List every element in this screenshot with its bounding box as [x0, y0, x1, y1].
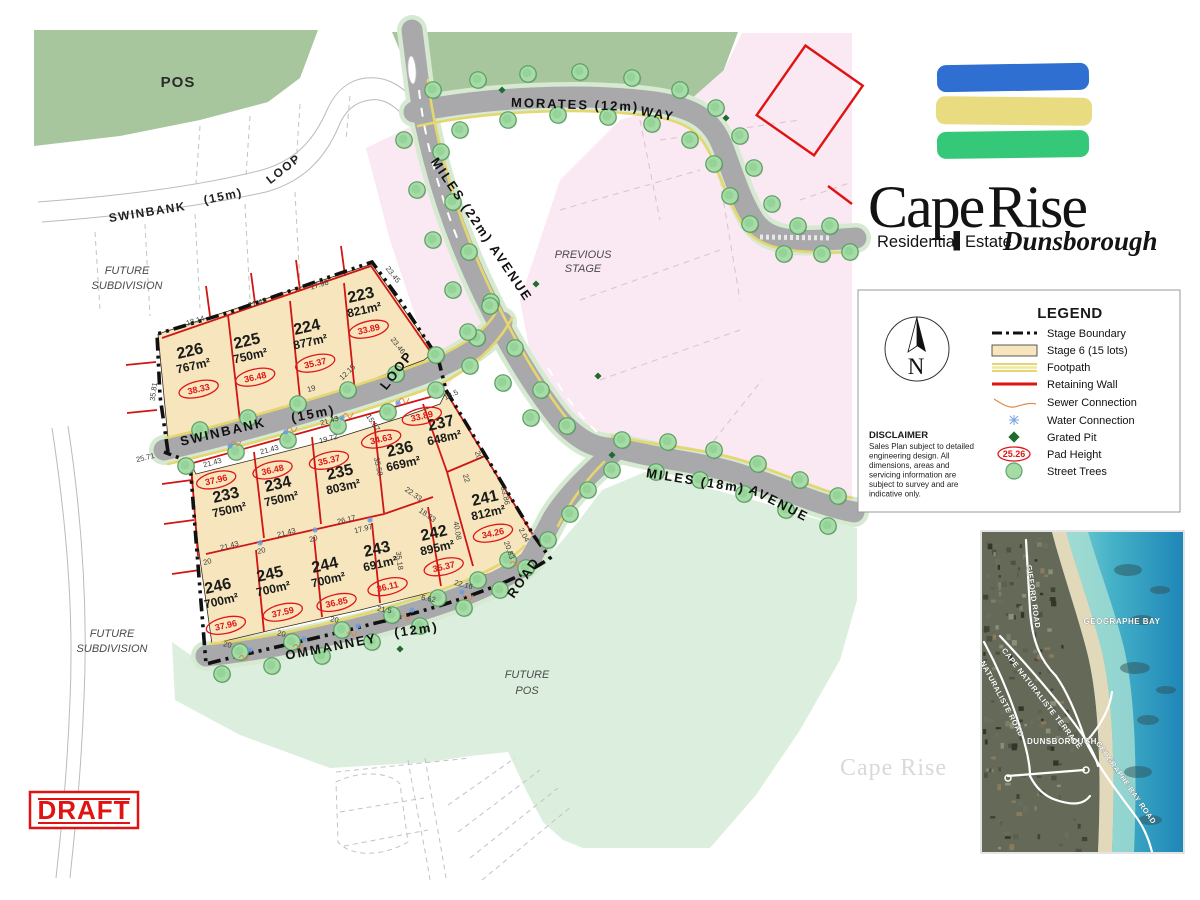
legend-item-label: Stage Boundary	[1047, 328, 1126, 340]
legend-item-label: Footpath	[1047, 362, 1090, 374]
street-tree-icon	[462, 358, 479, 375]
dimension-label: 35.81	[148, 382, 160, 402]
location-map: GEOGRAPHE BAY GIFFORD ROAD CAPE NATURALI…	[978, 531, 1184, 853]
legend-item-label: Water Connection	[1047, 415, 1135, 427]
legend-item-label: Grated Pit	[1047, 432, 1097, 444]
legend-panel: N LEGEND 25.26 Stage Boundary Stage 6 (1…	[858, 290, 1180, 512]
street-tree-icon	[822, 218, 839, 235]
street-tree-icon	[776, 246, 793, 263]
legend-water-icon	[1009, 415, 1019, 425]
street-tree-icon	[830, 488, 847, 505]
street-tree-icon	[470, 72, 487, 89]
street-tree-icon	[742, 216, 759, 233]
street-tree-icon	[746, 160, 763, 177]
draft-label: DRAFT	[37, 795, 130, 825]
svg-text:Sales Plan subject to detailed: Sales Plan subject to detailed	[869, 442, 974, 451]
street-tree-icon	[750, 456, 767, 473]
svg-text:25.26: 25.26	[1003, 449, 1026, 459]
logo-stripe-blue	[937, 63, 1089, 93]
future-pos-label-1: FUTURE	[505, 669, 550, 681]
legend-item-label: Stage 6 (15 lots)	[1047, 345, 1128, 357]
street-tree-icon	[520, 66, 537, 83]
street-tree-icon	[425, 82, 442, 99]
street-tree-icon	[460, 324, 477, 341]
street-tree-icon	[580, 482, 597, 499]
street-tree-icon	[814, 246, 831, 263]
street-tree-icon	[842, 244, 859, 261]
site-plan: 18.1421.4317.9823.4535.8125.7121.431912.…	[0, 0, 1200, 900]
street-tree-icon	[708, 100, 725, 117]
street-tree-icon	[682, 132, 699, 149]
future-subdivision-bottom-2: SUBDIVISION	[77, 643, 148, 655]
street-tree-icon	[500, 112, 517, 129]
logo-divider-bar	[954, 231, 961, 251]
cape-rise-logo: CapeRise Residential Estate Dunsborough	[868, 63, 1158, 256]
legend-stage6-icon	[992, 345, 1037, 356]
future-subdivision-bottom-1: FUTURE	[90, 628, 135, 640]
street-tree-icon	[562, 506, 579, 523]
street-tree-icon	[396, 132, 413, 149]
map-label-geographe-bay: GEOGRAPHE BAY	[1084, 617, 1161, 626]
street-tree-icon	[232, 644, 249, 661]
dimension-label: 21.43	[202, 456, 222, 470]
street-tree-icon	[445, 282, 462, 299]
street-tree-icon	[559, 418, 576, 435]
street-tree-icon	[178, 458, 195, 475]
map-label-dunsborough: DUNSBOROUGH	[1027, 737, 1097, 746]
street-tree-icon	[706, 442, 723, 459]
logo-locality: Dunsborough	[1002, 226, 1158, 256]
future-subdivision-top-1: FUTURE	[105, 265, 150, 277]
street-tree-icon	[706, 156, 723, 173]
street-tree-icon	[533, 382, 550, 399]
street-tree-icon	[482, 298, 499, 315]
street-tree-icon	[540, 532, 557, 549]
logo-residential: Residential	[877, 233, 959, 251]
legend-street-tree-icon	[1006, 463, 1022, 479]
street-swinbank-future: SWINBANK	[108, 199, 187, 225]
legend-pad-height-icon: 25.26	[998, 447, 1030, 461]
legend-item-label: Street Trees	[1047, 466, 1107, 478]
street-tree-icon	[456, 600, 473, 617]
street-tree-icon	[790, 218, 807, 235]
street-tree-icon	[214, 666, 231, 683]
compass-north-label: N	[908, 354, 925, 379]
logo-stripe-green	[937, 130, 1089, 159]
street-tree-icon	[507, 340, 524, 357]
street-tree-icon	[614, 432, 631, 449]
sewer-connection-icon	[399, 398, 409, 403]
street-tree-icon	[452, 122, 469, 139]
cape-rise-watermark: Cape Rise	[840, 755, 947, 781]
street-tree-icon	[764, 196, 781, 213]
street-tree-icon	[264, 658, 281, 675]
svg-text:subject to survey and are: subject to survey and are	[869, 480, 959, 489]
disclaimer-title: DISCLAIMER	[869, 430, 928, 441]
previous-stage-label-2: STAGE	[565, 263, 602, 275]
street-tree-icon	[428, 382, 445, 399]
future-pos-label-2: POS	[515, 685, 539, 697]
street-tree-icon	[672, 82, 689, 99]
street-tree-icon	[428, 347, 445, 364]
svg-text:indicative only.: indicative only.	[869, 490, 921, 499]
street-tree-icon	[572, 64, 589, 81]
legend-item-label: Pad Height	[1047, 449, 1101, 461]
street-tree-icon	[624, 70, 641, 87]
future-subdivision-top-2: SUBDIVISION	[92, 280, 163, 292]
logo-stripe-yellow	[936, 96, 1092, 126]
dimension-label: 25.71	[135, 451, 155, 464]
street-tree-icon	[461, 244, 478, 261]
svg-text:dimensions, areas and: dimensions, areas and	[869, 461, 950, 470]
street-tree-icon	[820, 518, 837, 535]
legend-item-label: Retaining Wall	[1047, 379, 1118, 391]
street-tree-icon	[604, 462, 621, 479]
svg-text:engineering design. All: engineering design. All	[869, 452, 950, 461]
street-tree-icon	[732, 128, 749, 145]
compass: N	[885, 317, 949, 381]
street-tree-icon	[523, 410, 540, 427]
street-tree-icon	[380, 404, 397, 421]
street-tree-icon	[495, 375, 512, 392]
street-tree-icon	[425, 232, 442, 249]
street-tree-icon	[660, 434, 677, 451]
street-tree-icon	[340, 382, 357, 399]
previous-stage-label-1: PREVIOUS	[555, 249, 613, 261]
legend-item-label: Sewer Connection	[1047, 397, 1137, 409]
pos-label: POS	[161, 74, 196, 91]
legend-title: LEGEND	[1037, 305, 1103, 322]
draft-stamp: DRAFT	[30, 792, 138, 828]
svg-text:servicing information are: servicing information are	[869, 471, 957, 480]
street-tree-icon	[280, 432, 297, 449]
street-tree-icon	[409, 182, 426, 199]
street-swinbank-future-size: (15m)	[202, 185, 244, 207]
street-swinbank-future-suffix: LOOP	[263, 151, 303, 187]
street-tree-icon	[792, 472, 809, 489]
sales-plan-page: 18.1421.4317.9823.4535.8125.7121.431912.…	[0, 0, 1200, 900]
street-tree-icon	[722, 188, 739, 205]
